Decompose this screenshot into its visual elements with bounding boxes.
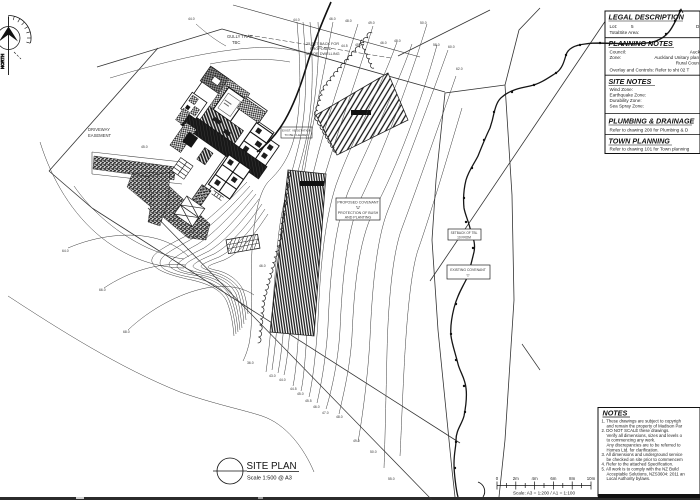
svg-text:66.0: 66.0: [99, 288, 106, 292]
svg-text:NORTH: NORTH: [0, 54, 5, 69]
svg-text:44.0: 44.0: [279, 378, 286, 382]
svg-text:45.0: 45.0: [141, 145, 148, 149]
svg-text:60.0: 60.0: [448, 45, 455, 49]
svg-text:Council:: Council:: [610, 50, 627, 55]
svg-text:49.0: 49.0: [368, 21, 375, 25]
svg-text:36.0: 36.0: [247, 361, 254, 365]
svg-text:Scale 1:500 @ A3: Scale 1:500 @ A3: [247, 476, 292, 482]
svg-text:45.0: 45.0: [297, 392, 304, 396]
svg-text:TBC: TBC: [232, 40, 240, 45]
svg-text:50.0: 50.0: [370, 450, 377, 454]
svg-text:Overlay and Controls: Refer t: Overlay and Controls: Refer to sht 02 T: [610, 68, 690, 73]
svg-text:48.0: 48.0: [336, 415, 343, 419]
svg-text:58.0: 58.0: [433, 43, 440, 47]
svg-text:SITE NOTES: SITE NOTES: [609, 77, 652, 86]
svg-text:49.0: 49.0: [353, 439, 360, 443]
svg-text:LEGAL DESCRIPTION: LEGAL DESCRIPTION: [609, 13, 685, 22]
svg-text:44.0: 44.0: [188, 17, 195, 21]
svg-text:AND PLANTING: AND PLANTING: [345, 216, 372, 220]
svg-text:Auckland Unitary plan: Auckland Unitary plan: [654, 55, 699, 60]
svg-text:PLUMBING & DRAINAGE: PLUMBING & DRAINAGE: [609, 117, 695, 126]
svg-text:Refer to drawing 200 for Plumb: Refer to drawing 200 for Plumbing & D: [610, 128, 689, 133]
svg-text:50.0: 50.0: [420, 21, 427, 25]
svg-text:PROPOSED COVENANT: PROPOSED COVENANT: [337, 201, 379, 205]
svg-text:2m: 2m: [513, 476, 519, 481]
svg-text:47.0: 47.0: [322, 411, 329, 415]
svg-text:Rural Coun: Rural Coun: [676, 61, 700, 66]
svg-text:48.0: 48.0: [345, 19, 352, 23]
svg-text:'T': 'T': [466, 273, 470, 278]
svg-text:44.0: 44.0: [293, 18, 300, 22]
svg-text:25 SET BACK FOR: 25 SET BACK FOR: [306, 42, 339, 46]
svg-text:55.0: 55.0: [388, 477, 395, 481]
svg-text:Auck: Auck: [690, 50, 700, 55]
svg-text:8m: 8m: [569, 476, 575, 481]
svg-text:TO BE CLEARED: TO BE CLEARED: [285, 133, 310, 137]
svg-text:SITE PLAN: SITE PLAN: [247, 461, 297, 472]
svg-text:45.0: 45.0: [355, 43, 362, 47]
svg-text:45.5: 45.5: [305, 399, 312, 403]
svg-text:GULLY TRAP: GULLY TRAP: [227, 34, 253, 39]
svg-text:4m: 4m: [532, 476, 538, 481]
svg-text:64.0: 64.0: [62, 249, 69, 253]
svg-text:44.5: 44.5: [168, 218, 175, 222]
svg-text:Earthquake Zone:: Earthquake Zone:: [610, 93, 647, 98]
svg-text:46.0: 46.0: [380, 41, 387, 45]
svg-text:Refer to drawing 101 for Town: Refer to drawing 101 for Town planning: [610, 147, 690, 152]
svg-text:EASEMENT: EASEMENT: [88, 133, 111, 138]
svg-text:46.0: 46.0: [259, 264, 266, 268]
svg-text:Zone:: Zone:: [610, 55, 622, 60]
svg-text:Local Authority bylaws.: Local Authority bylaws.: [607, 476, 651, 481]
svg-text:10 FROM: 10 FROM: [457, 236, 471, 240]
svg-text:Wind Zone:: Wind Zone:: [610, 87, 634, 92]
svg-text:Lot:: Lot:: [610, 24, 618, 29]
svg-text:44.5: 44.5: [341, 44, 348, 48]
svg-text:68.0: 68.0: [123, 330, 130, 334]
svg-text:5: 5: [631, 24, 634, 29]
svg-text:46.0: 46.0: [313, 405, 320, 409]
svg-text:44.5: 44.5: [290, 387, 297, 391]
svg-text:6m: 6m: [550, 476, 556, 481]
svg-text:NOTES: NOTES: [603, 409, 628, 418]
svg-text:Scale: A3 = 1:200 / A1 = 1:: Scale: A3 = 1:200 / A1 = 1:100: [513, 491, 576, 496]
svg-text:62.0: 62.0: [456, 67, 463, 71]
svg-text:Sea Spray Zone:: Sea Spray Zone:: [610, 104, 644, 109]
svg-text:43.0: 43.0: [269, 374, 276, 378]
svg-text:PROTECTION OF BUSH: PROTECTION OF BUSH: [338, 211, 379, 215]
svg-text:TOWN PLANNING: TOWN PLANNING: [609, 137, 671, 146]
svg-text:SETBACK OF TBL: SETBACK OF TBL: [451, 231, 478, 235]
svg-text:DRIVEWAY: DRIVEWAY: [88, 127, 110, 132]
svg-text:10m: 10m: [587, 476, 596, 481]
svg-text:48.0: 48.0: [394, 39, 401, 43]
svg-text:Durability Zone:: Durability Zone:: [610, 98, 642, 103]
svg-text:EXISTING COVENANT: EXISTING COVENANT: [450, 268, 486, 272]
svg-text:'U': 'U': [356, 205, 361, 210]
svg-text:46.0: 46.0: [329, 17, 336, 21]
svg-text:TotalSite Area:: TotalSite Area:: [610, 30, 640, 35]
